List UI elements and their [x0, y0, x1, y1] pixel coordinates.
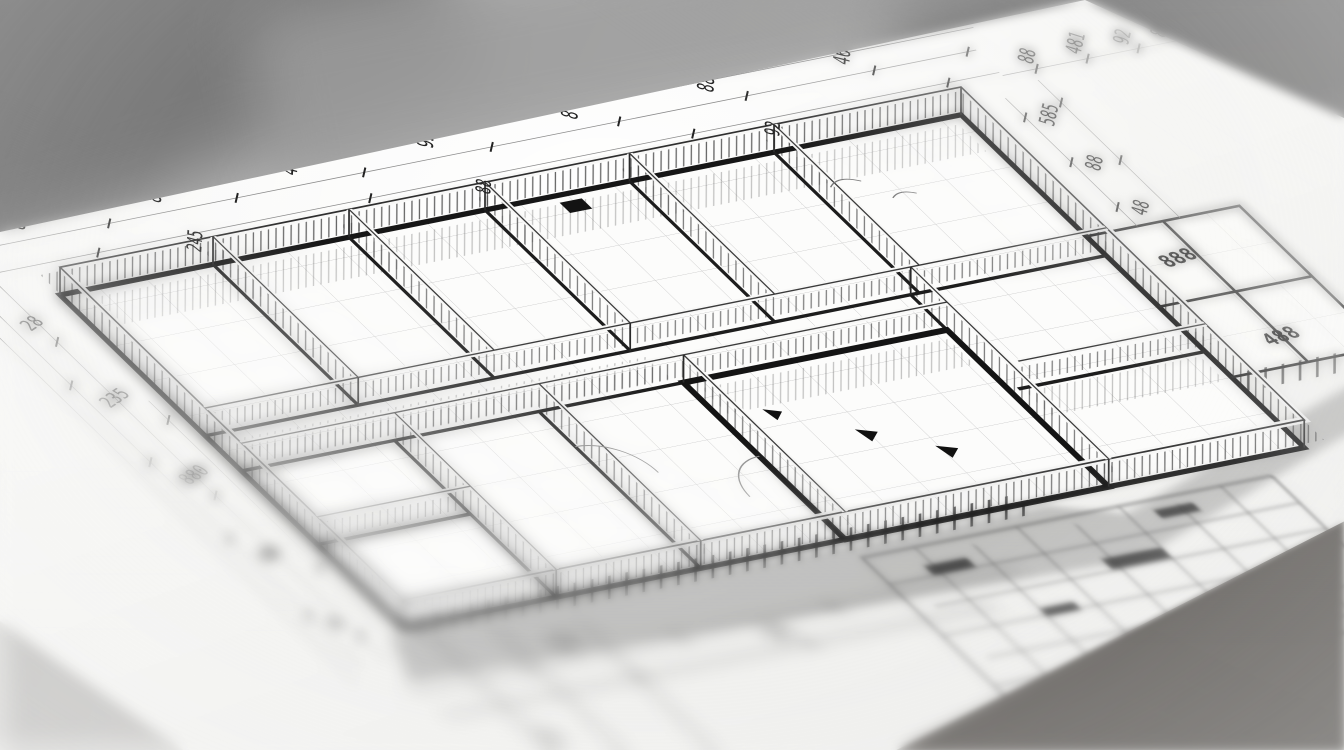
- dim-label: 88: [1014, 45, 1042, 67]
- dim-label: 8: [322, 615, 350, 632]
- dim-label: 880: [173, 462, 215, 488]
- dim-label: 92: [1109, 26, 1137, 48]
- dim-label: 25: [757, 619, 799, 645]
- dim-label: 88: [252, 543, 287, 565]
- dim-label: 8: [535, 727, 569, 748]
- dim-label: 88: [142, 184, 168, 206]
- dim-label: 88: [1081, 152, 1109, 174]
- dim-label: 92: [414, 129, 440, 151]
- desk-scene: 85 88 481 92 8 88 46 245 88 92 2: [0, 0, 1344, 750]
- dim-label: 46: [830, 46, 856, 68]
- dim-label: 481: [278, 149, 305, 178]
- dim-label: 88: [694, 73, 720, 95]
- dim-label: 8: [1146, 26, 1173, 41]
- dim-label: 235: [94, 385, 136, 411]
- dim-label: 48: [1127, 197, 1155, 219]
- dim-label: 8: [558, 108, 584, 122]
- dim-label: 481: [1061, 29, 1091, 57]
- dim-label: 28: [15, 313, 50, 335]
- dim-label: 85: [6, 211, 32, 233]
